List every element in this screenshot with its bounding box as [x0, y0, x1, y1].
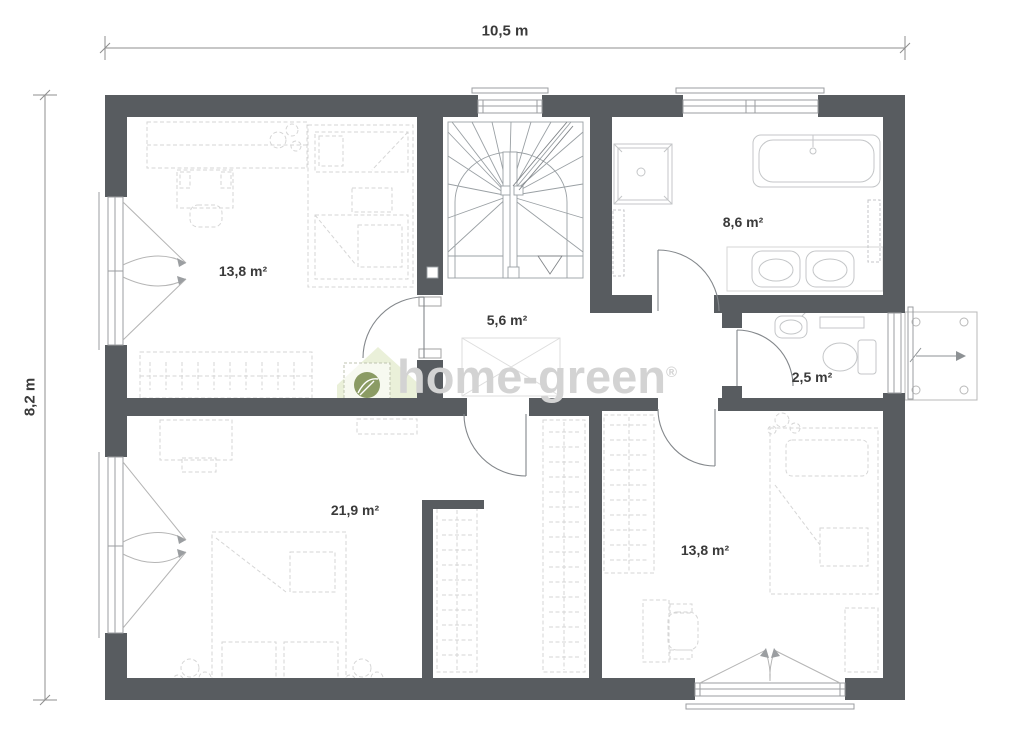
stairs-direction-arrow-icon — [538, 256, 562, 274]
brand-watermark: home-green® — [397, 353, 677, 401]
room-area-label-bedroom-bottom-left: 21,9 m² — [331, 502, 379, 518]
room-area-label-wc: 2,5 m² — [792, 369, 832, 385]
exterior-platform — [905, 312, 977, 400]
room-area-label-bedroom-bottom-right: 13,8 m² — [681, 542, 729, 558]
dimension-top-line — [100, 36, 910, 60]
room-area-label-hallway: 5,6 m² — [487, 312, 527, 328]
door-bedroom-bottom-right — [658, 409, 715, 466]
bathroom-fixtures — [613, 135, 883, 291]
staircase — [427, 122, 583, 278]
watermark-leaf-icon — [354, 372, 380, 398]
bedroom-bottomright-furniture — [604, 413, 878, 672]
window-left-bottom — [99, 452, 186, 638]
window-top-bathroom — [676, 88, 824, 113]
registered-trademark-icon: ® — [666, 349, 677, 397]
window-left-top — [99, 192, 186, 350]
bedroom-bottomleft-furniture — [160, 419, 585, 685]
dimension-height-label: 8,2 m — [22, 378, 39, 416]
wc-fixtures — [775, 309, 876, 374]
brand-watermark-text: home-green — [397, 350, 666, 403]
dimension-width-label: 10,5 m — [482, 23, 529, 40]
window-right-wc — [888, 307, 913, 399]
window-top-stairs — [472, 88, 548, 113]
window-bottom-bedroom — [686, 648, 854, 709]
door-bedroom-bottom-left — [464, 414, 526, 476]
door-bathroom — [658, 250, 719, 311]
room-area-label-bedroom-top-left: 13,8 m² — [219, 263, 267, 279]
room-area-label-bathroom: 8,6 m² — [723, 214, 763, 230]
door-bedroom-top-left — [363, 297, 441, 358]
floor-plan: 10,5 m 8,2 m 13,8 m² 8,6 m² 5,6 m² 2,5 m… — [0, 0, 1024, 752]
